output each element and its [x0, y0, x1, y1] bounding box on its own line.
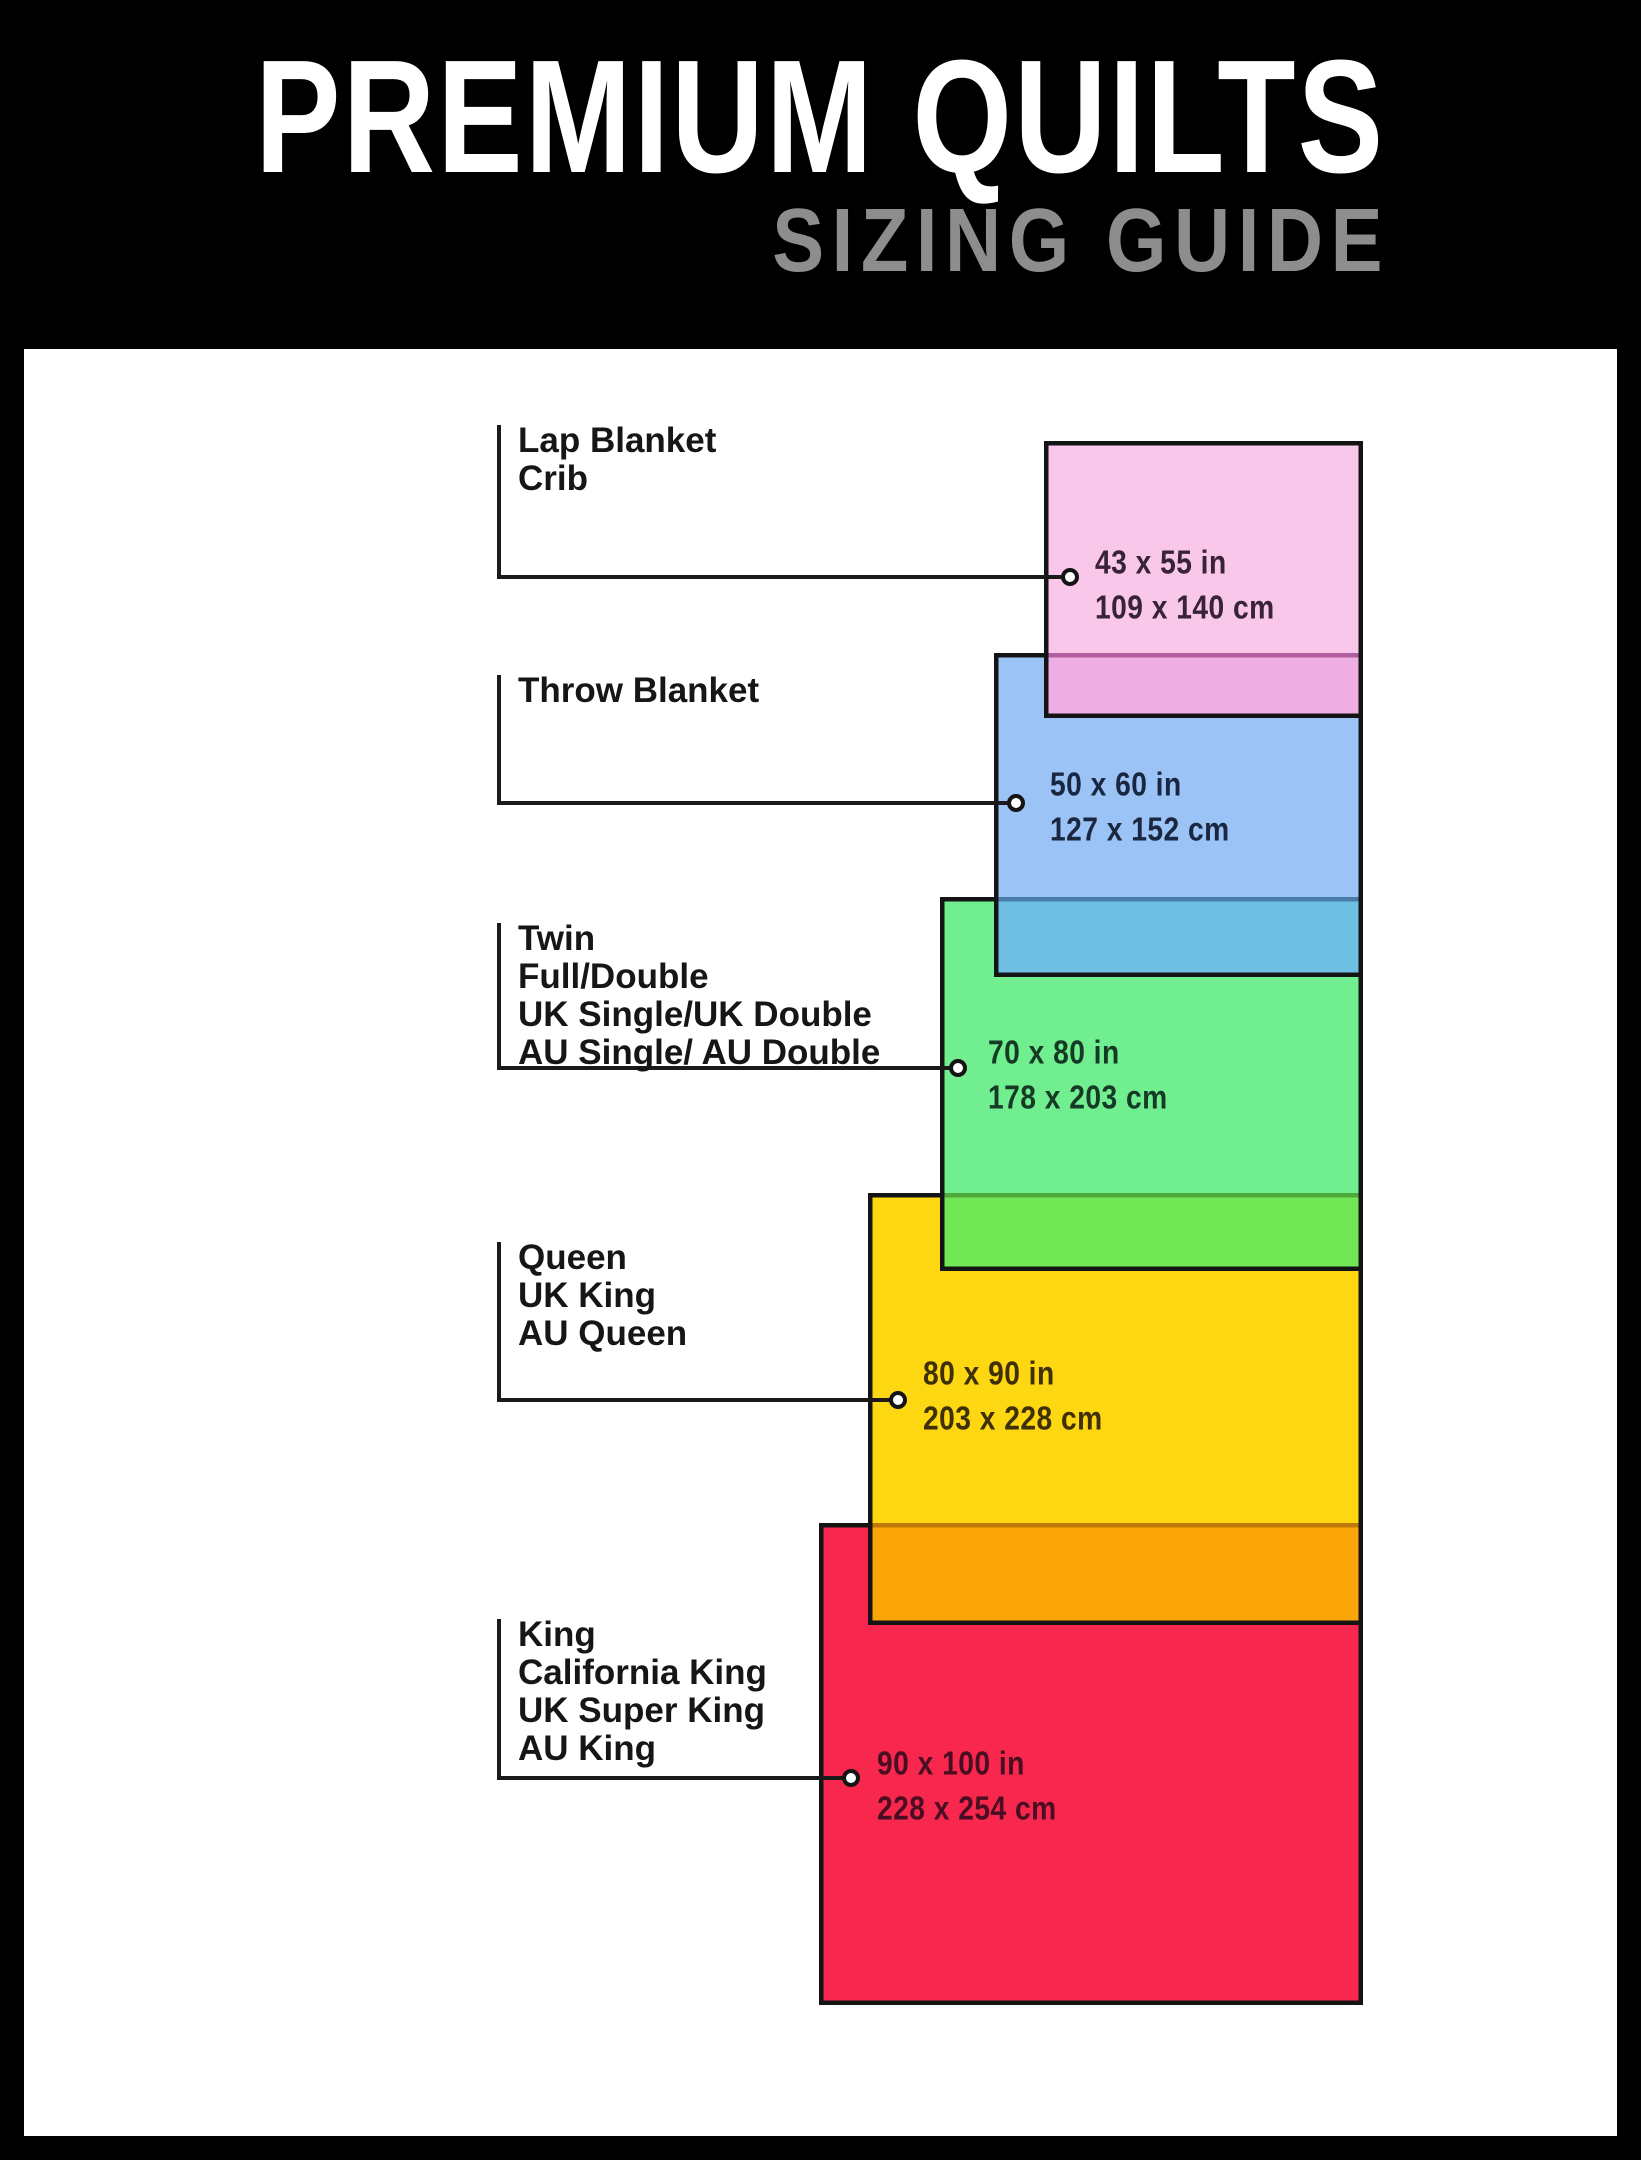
overlap-lap-throw — [1044, 653, 1363, 718]
size-label-line: Crib — [518, 460, 716, 498]
size-label-line: AU Queen — [518, 1315, 687, 1353]
size-label-twin: TwinFull/DoubleUK Single/UK DoubleAU Sin… — [518, 920, 880, 1072]
size-label-line: Full/Double — [518, 958, 880, 996]
overlap-seam-twin — [994, 897, 1363, 902]
size-label-line: King — [518, 1616, 767, 1654]
size-label-line: AU King — [518, 1730, 767, 1768]
overlap-throw-twin — [994, 897, 1363, 977]
size-label-line: UK Super King — [518, 1692, 767, 1730]
size-label-line: Throw Blanket — [518, 672, 759, 710]
overlap-seam-king — [868, 1523, 1363, 1528]
bracket-line-horizontal-queen — [497, 1398, 898, 1402]
bracket-line-horizontal-lap — [497, 575, 1070, 579]
connector-dot-king — [842, 1769, 860, 1787]
connector-dot-twin — [949, 1059, 967, 1077]
bracket-line-vertical-twin — [497, 923, 501, 1070]
bracket-line-horizontal-king — [497, 1776, 851, 1780]
connector-dot-lap — [1061, 568, 1079, 586]
size-dimensions-queen: 80 x 90 in203 x 228 cm — [923, 1352, 1103, 1442]
size-label-king: KingCalifornia KingUK Super KingAU King — [518, 1616, 767, 1768]
size-boxes-canvas — [0, 0, 1641, 2160]
size-label-line: Queen — [518, 1239, 687, 1277]
bracket-line-vertical-throw — [497, 675, 501, 805]
bracket-line-vertical-king — [497, 1619, 501, 1780]
bracket-line-vertical-lap — [497, 425, 501, 579]
size-cm: 127 x 152 cm — [1050, 808, 1230, 853]
connector-dot-queen — [889, 1391, 907, 1409]
size-label-line: Lap Blanket — [518, 422, 716, 460]
size-label-queen: QueenUK KingAU Queen — [518, 1239, 687, 1353]
size-dimensions-throw: 50 x 60 in127 x 152 cm — [1050, 763, 1230, 853]
size-cm: 109 x 140 cm — [1095, 586, 1275, 631]
size-cm: 203 x 228 cm — [923, 1397, 1103, 1442]
size-label-line: Twin — [518, 920, 880, 958]
size-inches: 43 x 55 in — [1095, 541, 1275, 586]
size-label-line: UK King — [518, 1277, 687, 1315]
bracket-line-horizontal-throw — [497, 801, 1016, 805]
size-dimensions-king: 90 x 100 in228 x 254 cm — [877, 1742, 1057, 1832]
overlap-twin-queen — [940, 1193, 1363, 1271]
size-cm: 178 x 203 cm — [988, 1076, 1168, 1121]
overlap-seam-queen — [940, 1193, 1363, 1198]
size-label-line: AU Single/ AU Double — [518, 1034, 880, 1072]
size-dimensions-lap: 43 x 55 in109 x 140 cm — [1095, 541, 1275, 631]
size-label-line: California King — [518, 1654, 767, 1692]
overlap-seam-throw — [1044, 653, 1363, 658]
size-cm: 228 x 254 cm — [877, 1787, 1057, 1832]
size-inches: 80 x 90 in — [923, 1352, 1103, 1397]
overlap-queen-king — [868, 1523, 1363, 1625]
size-inches: 50 x 60 in — [1050, 763, 1230, 808]
size-label-line: UK Single/UK Double — [518, 996, 880, 1034]
size-inches: 90 x 100 in — [877, 1742, 1057, 1787]
bracket-line-vertical-queen — [497, 1242, 501, 1402]
size-label-lap: Lap BlanketCrib — [518, 422, 716, 498]
connector-dot-throw — [1007, 794, 1025, 812]
size-dimensions-twin: 70 x 80 in178 x 203 cm — [988, 1031, 1168, 1121]
size-label-throw: Throw Blanket — [518, 672, 759, 710]
size-inches: 70 x 80 in — [988, 1031, 1168, 1076]
quilt-sizing-infographic: PREMIUM QUILTS SIZING GUIDE Lap BlanketC… — [0, 0, 1641, 2160]
